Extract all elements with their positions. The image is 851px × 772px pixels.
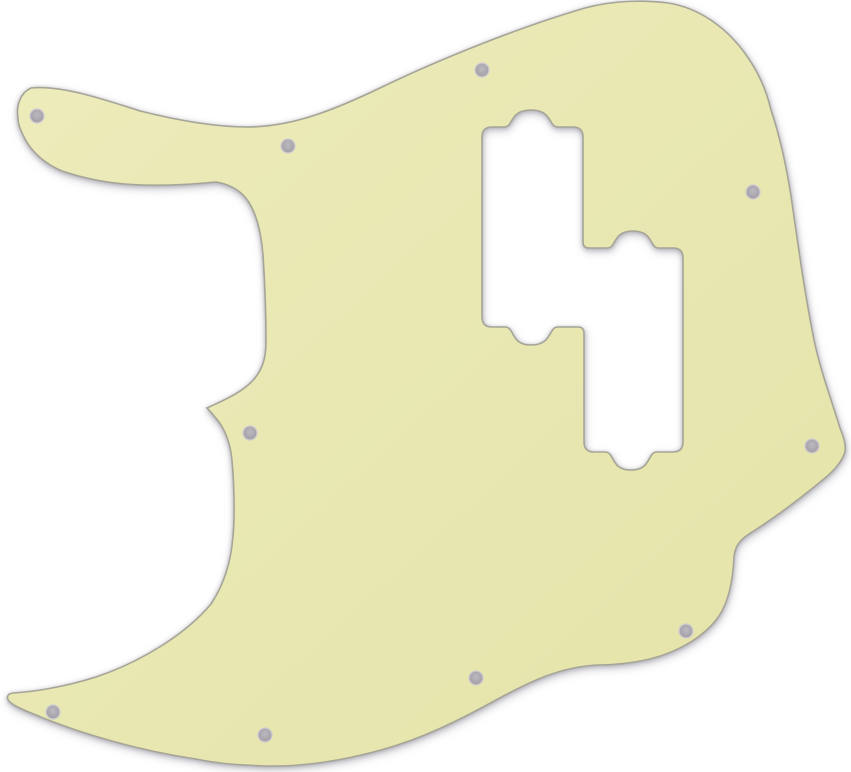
product-image	[0, 0, 851, 772]
pickguard-image	[0, 0, 851, 772]
screw-hole	[30, 109, 44, 123]
screw-hole	[746, 185, 760, 199]
screw-hole	[281, 139, 295, 153]
screw-hole	[46, 705, 60, 719]
screw-hole	[805, 439, 819, 453]
screw-hole	[469, 671, 483, 685]
screw-hole	[243, 426, 257, 440]
pickguard-body	[7, 1, 845, 766]
screw-hole	[258, 728, 272, 742]
screw-hole	[679, 624, 693, 638]
screw-hole	[475, 63, 489, 77]
